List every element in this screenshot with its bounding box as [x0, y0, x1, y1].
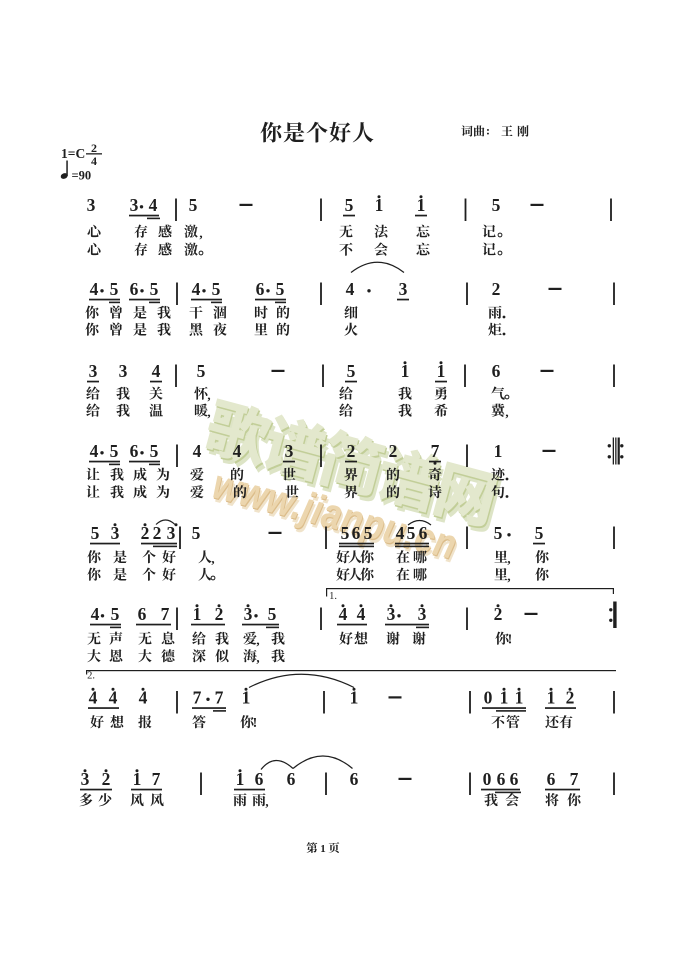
svg-text:5: 5	[347, 361, 356, 381]
svg-text:,: ,	[256, 633, 259, 648]
svg-text:2: 2	[91, 141, 97, 155]
svg-text:,: ,	[207, 388, 210, 403]
svg-text:6: 6	[419, 523, 428, 543]
svg-text:5: 5	[91, 523, 100, 543]
svg-text:1=C: 1=C	[61, 146, 85, 161]
svg-text:3: 3	[119, 361, 128, 381]
svg-text:5: 5	[494, 523, 503, 543]
svg-text:,: ,	[507, 551, 510, 566]
svg-text:,: ,	[256, 650, 259, 665]
svg-text:6: 6	[255, 769, 264, 789]
svg-text:2: 2	[389, 441, 398, 461]
svg-text::: :	[486, 124, 490, 138]
svg-text:5: 5	[268, 604, 277, 624]
svg-text:7: 7	[215, 688, 224, 708]
svg-text:4: 4	[90, 441, 99, 461]
svg-text:7: 7	[161, 604, 170, 624]
svg-text:0: 0	[483, 769, 492, 789]
svg-text:6: 6	[352, 523, 361, 543]
svg-text:6: 6	[130, 279, 139, 299]
svg-text:5: 5	[492, 195, 501, 215]
svg-text:3: 3	[89, 361, 98, 381]
svg-text:4: 4	[192, 279, 201, 299]
svg-text:7: 7	[570, 769, 579, 789]
svg-text:5: 5	[111, 604, 120, 624]
svg-text:7: 7	[193, 688, 202, 708]
svg-text:6: 6	[510, 769, 519, 789]
svg-text:,: ,	[207, 405, 210, 420]
svg-text:5: 5	[364, 523, 373, 543]
svg-text:,: ,	[265, 794, 268, 809]
svg-text:1: 1	[320, 843, 326, 855]
svg-text:0: 0	[484, 688, 493, 708]
svg-text:5: 5	[535, 523, 544, 543]
svg-text:1.: 1.	[329, 591, 337, 602]
svg-text:5: 5	[150, 279, 159, 299]
svg-text:2: 2	[492, 279, 501, 299]
svg-text:5: 5	[150, 441, 159, 461]
svg-text:5: 5	[110, 279, 119, 299]
svg-text:6: 6	[130, 441, 139, 461]
svg-text:5: 5	[212, 279, 221, 299]
svg-text:6: 6	[138, 604, 147, 624]
svg-text:6: 6	[492, 361, 501, 381]
svg-text:,: ,	[211, 551, 214, 566]
svg-text:5: 5	[192, 523, 201, 543]
svg-text:1: 1	[494, 441, 503, 461]
svg-text:,: ,	[505, 405, 508, 420]
svg-text:7: 7	[152, 769, 161, 789]
svg-text:,: ,	[199, 226, 202, 241]
svg-text:5: 5	[110, 441, 119, 461]
svg-text:4: 4	[152, 361, 161, 381]
svg-text:3: 3	[167, 523, 176, 543]
svg-text:2.: 2.	[87, 671, 95, 682]
svg-text:4: 4	[90, 279, 99, 299]
svg-text:2: 2	[347, 441, 356, 461]
svg-text:,: ,	[507, 569, 510, 584]
svg-text:4: 4	[149, 195, 158, 215]
svg-text:4: 4	[91, 604, 100, 624]
svg-text:4: 4	[91, 154, 97, 168]
svg-text:4: 4	[233, 441, 242, 461]
svg-text:3: 3	[285, 441, 294, 461]
svg-text:6: 6	[350, 769, 359, 789]
svg-text:3: 3	[399, 279, 408, 299]
svg-text:5: 5	[341, 523, 350, 543]
svg-text:5: 5	[189, 195, 198, 215]
svg-text:6: 6	[256, 279, 265, 299]
svg-text:2: 2	[153, 523, 162, 543]
svg-text:!: !	[508, 633, 513, 648]
svg-text:6: 6	[547, 769, 556, 789]
svg-text:6: 6	[497, 769, 506, 789]
svg-text:5: 5	[407, 523, 416, 543]
svg-text:=90: =90	[72, 169, 92, 183]
svg-text:3: 3	[87, 195, 96, 215]
svg-text:3: 3	[130, 195, 139, 215]
svg-text:7: 7	[431, 441, 440, 461]
svg-text:5: 5	[276, 279, 285, 299]
svg-text:5: 5	[345, 195, 354, 215]
svg-text:4: 4	[193, 441, 202, 461]
svg-text:4: 4	[396, 523, 405, 543]
svg-text:4: 4	[346, 279, 355, 299]
svg-text:5: 5	[197, 361, 206, 381]
svg-text:!: !	[253, 716, 258, 731]
svg-text:6: 6	[287, 769, 296, 789]
